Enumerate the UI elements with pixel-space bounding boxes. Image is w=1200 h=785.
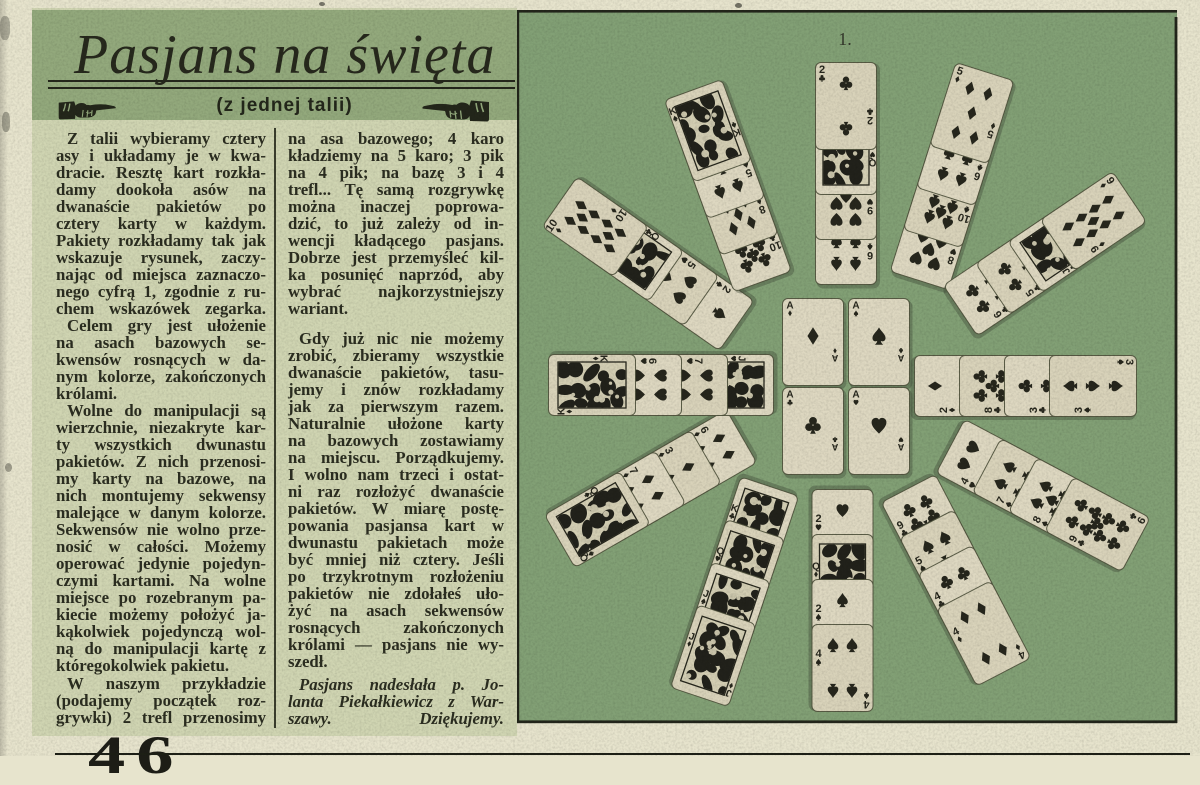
svg-text:K: K (557, 407, 568, 415)
svg-text:Q: Q (868, 156, 876, 167)
svg-text:2: 2 (819, 64, 825, 76)
svg-text:A: A (831, 442, 838, 452)
svg-text:7: 7 (692, 358, 704, 364)
svg-text:6: 6 (646, 358, 658, 364)
svg-text:3: 3 (1123, 359, 1135, 365)
svg-text:A: A (852, 301, 859, 312)
svg-text:8: 8 (983, 407, 995, 413)
svg-text:2: 2 (815, 513, 821, 525)
svg-text:A: A (897, 353, 904, 363)
svg-text:2: 2 (867, 114, 873, 126)
svg-text:2: 2 (815, 603, 821, 615)
svg-text:A: A (897, 442, 904, 452)
svg-text:6: 6 (867, 249, 873, 261)
svg-text:4: 4 (863, 698, 870, 710)
svg-text:9: 9 (867, 204, 873, 216)
svg-text:A: A (786, 301, 793, 312)
svg-text:2: 2 (938, 407, 950, 413)
svg-text:3: 3 (1028, 407, 1040, 413)
svg-text:Q: Q (812, 562, 820, 573)
svg-text:1.: 1. (838, 29, 852, 49)
svg-text:4: 4 (815, 648, 822, 660)
svg-text:A: A (786, 390, 793, 401)
svg-text:3: 3 (1073, 407, 1085, 413)
svg-text:J: J (735, 356, 746, 362)
svg-text:A: A (852, 390, 859, 401)
svg-text:K: K (597, 355, 608, 363)
svg-text:A: A (831, 353, 838, 363)
